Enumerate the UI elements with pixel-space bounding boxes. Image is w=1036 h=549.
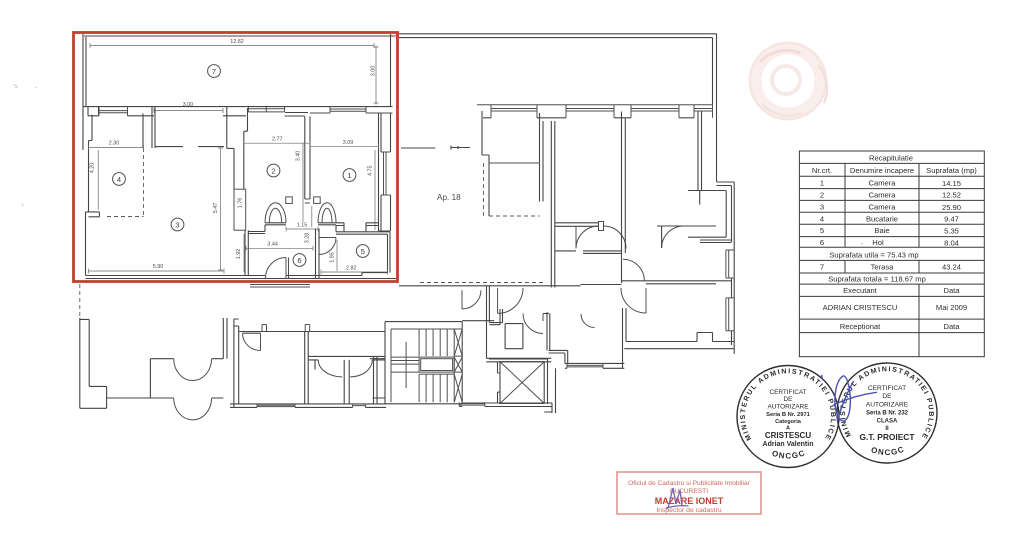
svg-text:Suprafata utila = 75.43 mp: Suprafata utila = 75.43 mp	[829, 250, 918, 259]
svg-text:CRISTESCU: CRISTESCU	[765, 431, 811, 440]
svg-text:Adrian Valentin: Adrian Valentin	[763, 441, 814, 448]
svg-text:Terasa: Terasa	[871, 262, 895, 271]
svg-text:1.76: 1.76	[238, 198, 244, 209]
svg-text:Camera: Camera	[868, 190, 896, 199]
svg-text:1.15: 1.15	[297, 222, 308, 228]
svg-text:BUCURESTI: BUCURESTI	[670, 488, 708, 495]
svg-text:Ap. 18: Ap. 18	[437, 193, 461, 202]
svg-text:Denumire incapere: Denumire incapere	[850, 166, 914, 175]
svg-text:3.44: 3.44	[267, 242, 278, 248]
svg-text:Categoria: Categoria	[775, 419, 802, 425]
svg-text:Camera: Camera	[868, 202, 896, 211]
svg-text:Recapitulatie: Recapitulatie	[869, 154, 913, 163]
svg-text:Receptionat: Receptionat	[840, 322, 881, 331]
svg-text:5: 5	[361, 247, 365, 256]
svg-text:5: 5	[820, 226, 824, 235]
svg-text:ADRIAN CRISTESCU: ADRIAN CRISTESCU	[823, 303, 898, 312]
svg-text:2: 2	[271, 167, 275, 176]
svg-text:CLASA: CLASA	[877, 419, 898, 425]
svg-text:2.30: 2.30	[109, 141, 120, 147]
svg-text:.: .	[861, 237, 863, 246]
svg-text:6: 6	[297, 256, 301, 265]
svg-text:3: 3	[820, 202, 824, 211]
svg-text:4: 4	[117, 175, 121, 184]
svg-text:5.35: 5.35	[944, 227, 959, 236]
svg-text:Executant: Executant	[843, 286, 878, 295]
svg-text:6: 6	[820, 238, 824, 247]
svg-text:Bucatarie: Bucatarie	[866, 214, 898, 223]
svg-text:AUTORIZARE: AUTORIZARE	[767, 404, 808, 411]
svg-text:DE: DE	[882, 393, 892, 400]
svg-text:CERTIFICAT: CERTIFICAT	[769, 389, 806, 396]
svg-text:43.24: 43.24	[942, 263, 961, 272]
svg-text:Oficiul de Cadastru si Publici: Oficiul de Cadastru si Publicitate Imobi…	[628, 480, 750, 487]
svg-text:1.92: 1.92	[236, 249, 242, 260]
svg-text:1: 1	[820, 178, 824, 187]
svg-text:3: 3	[175, 221, 179, 230]
svg-text:CERTIFICAT: CERTIFICAT	[868, 385, 906, 392]
svg-text:Camera: Camera	[868, 178, 896, 187]
svg-text:1.95: 1.95	[330, 252, 336, 263]
svg-text:12.82: 12.82	[230, 39, 244, 45]
svg-text:Data: Data	[943, 322, 960, 331]
svg-text:2: 2	[820, 190, 824, 199]
svg-text:Seria B Nr. 2971: Seria B Nr. 2971	[766, 412, 811, 418]
svg-text:7: 7	[212, 67, 216, 76]
svg-text:7: 7	[820, 262, 824, 271]
svg-text:25.90: 25.90	[942, 203, 961, 212]
svg-text:5.90: 5.90	[153, 264, 164, 270]
svg-text:Baie: Baie	[874, 226, 889, 235]
svg-text:Data: Data	[943, 286, 960, 295]
svg-text:2.82: 2.82	[346, 265, 357, 271]
svg-text:9.47: 9.47	[944, 215, 959, 224]
svg-text:5.47: 5.47	[213, 203, 219, 214]
svg-text:3.09: 3.09	[343, 140, 354, 146]
svg-text:Nr.crt.: Nr.crt.	[812, 166, 832, 175]
svg-text:1: 1	[347, 171, 351, 180]
svg-text:4.75: 4.75	[368, 165, 374, 176]
svg-text:Mai 2009: Mai 2009	[936, 303, 967, 312]
svg-text:AUTORIZARE: AUTORIZARE	[866, 402, 909, 409]
svg-text:3.00: 3.00	[183, 102, 194, 108]
svg-text:14.15: 14.15	[942, 179, 961, 188]
svg-text:3.40: 3.40	[296, 151, 302, 162]
svg-text:Suprafata (mp): Suprafata (mp)	[926, 166, 977, 175]
svg-text:3.00: 3.00	[371, 66, 377, 77]
svg-text:2.77: 2.77	[272, 137, 283, 143]
svg-text:Hol: Hol	[872, 238, 884, 247]
svg-text:4.20: 4.20	[90, 163, 96, 174]
svg-text:12.52: 12.52	[942, 191, 961, 200]
svg-text:4: 4	[820, 214, 824, 223]
svg-text:8.04: 8.04	[944, 238, 959, 247]
svg-text:3.28: 3.28	[305, 233, 311, 244]
svg-text:MAZARE IONET: MAZARE IONET	[655, 496, 724, 506]
svg-text:Suprafata totala = 118.67 mp: Suprafata totala = 118.67 mp	[828, 274, 926, 283]
svg-text:Seria B Nr. 232: Seria B Nr. 232	[866, 411, 909, 417]
svg-text:DE: DE	[784, 396, 793, 403]
svg-text:G.T. PROIECT: G.T. PROIECT	[860, 432, 916, 442]
